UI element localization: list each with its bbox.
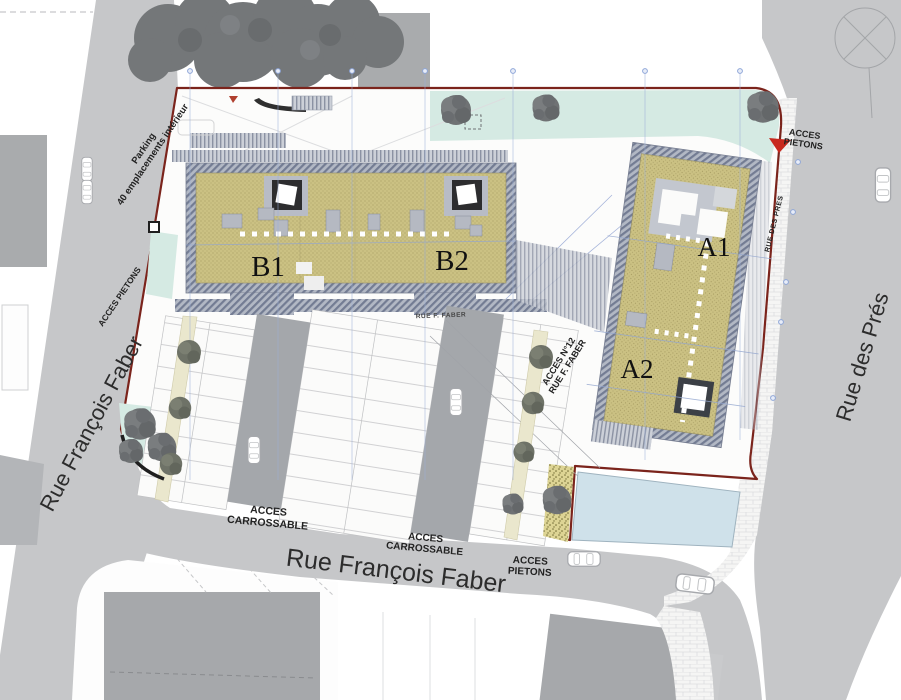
access-pietons-bottom-label: ACCES PIETONS (508, 555, 553, 580)
car-icon (82, 157, 92, 180)
building-label-b2: B2 (435, 245, 469, 277)
car-icon (82, 180, 92, 203)
tree-icon (503, 494, 524, 515)
gate-icon (149, 222, 159, 232)
car-icon (450, 389, 462, 416)
building-label-text: A2 (621, 354, 654, 384)
car-icon (568, 552, 600, 566)
tree-icon (533, 95, 560, 122)
tree-icon (177, 340, 201, 364)
context-building (0, 135, 47, 267)
context-building-outline (2, 305, 28, 390)
building-label-text: A1 (698, 232, 731, 262)
building-label-text: B2 (435, 245, 469, 277)
tree-icon (160, 453, 183, 476)
stairs-icon (292, 96, 332, 110)
building-label-a1: A1 (698, 232, 731, 262)
car-icon (675, 573, 715, 594)
tree-icon (747, 91, 779, 123)
building-b (175, 163, 547, 315)
building-label-a2: A2 (621, 354, 654, 384)
building-label-text: B1 (251, 251, 285, 283)
water-basin (572, 472, 740, 547)
tree-icon (514, 442, 535, 463)
site-plan: Parking 40 emplacements intérieur ACCES … (0, 0, 901, 700)
tree-icon (169, 397, 192, 420)
tree-icon (543, 486, 572, 515)
building-label-b1: B1 (251, 251, 285, 283)
car-icon (875, 168, 890, 202)
tree-icon (522, 392, 545, 415)
context-building (104, 592, 320, 700)
access-line2: PIETONS (508, 566, 552, 579)
tree-icon (119, 439, 143, 463)
tree-icon (124, 408, 156, 440)
car-icon (248, 437, 260, 464)
tree-icon (441, 95, 471, 125)
